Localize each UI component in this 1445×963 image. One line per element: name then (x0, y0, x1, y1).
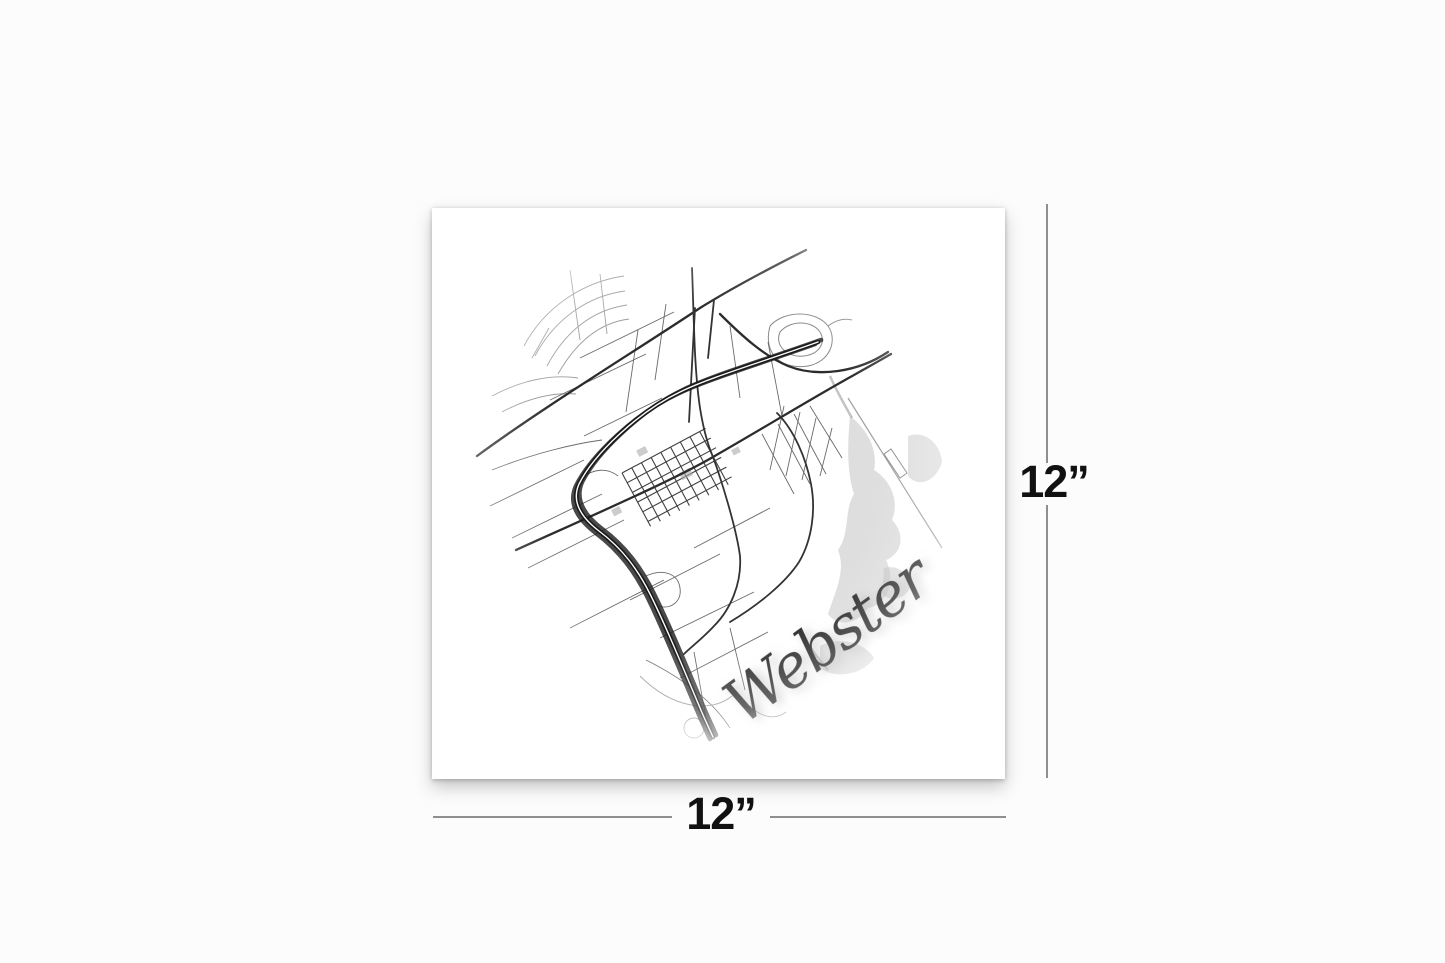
width-dimension-line-left (433, 816, 672, 818)
city-script-text: Webster (711, 540, 947, 738)
map-subdivision-northwest (492, 270, 629, 412)
product-photo: Webster 12” 12” (0, 0, 1445, 963)
map-subdivision-northeast (768, 314, 852, 367)
height-dimension-line-bottom (1046, 505, 1048, 778)
webster-map-artwork: Webster (432, 208, 1005, 779)
print-panel: Webster (432, 208, 1005, 779)
height-dimension-label: 12” (1008, 460, 1100, 504)
width-dimension-label: 12” (675, 792, 767, 836)
width-dimension-line-right (770, 816, 1006, 818)
height-dimension-line-top (1046, 204, 1048, 463)
map-content: Webster (477, 250, 947, 739)
